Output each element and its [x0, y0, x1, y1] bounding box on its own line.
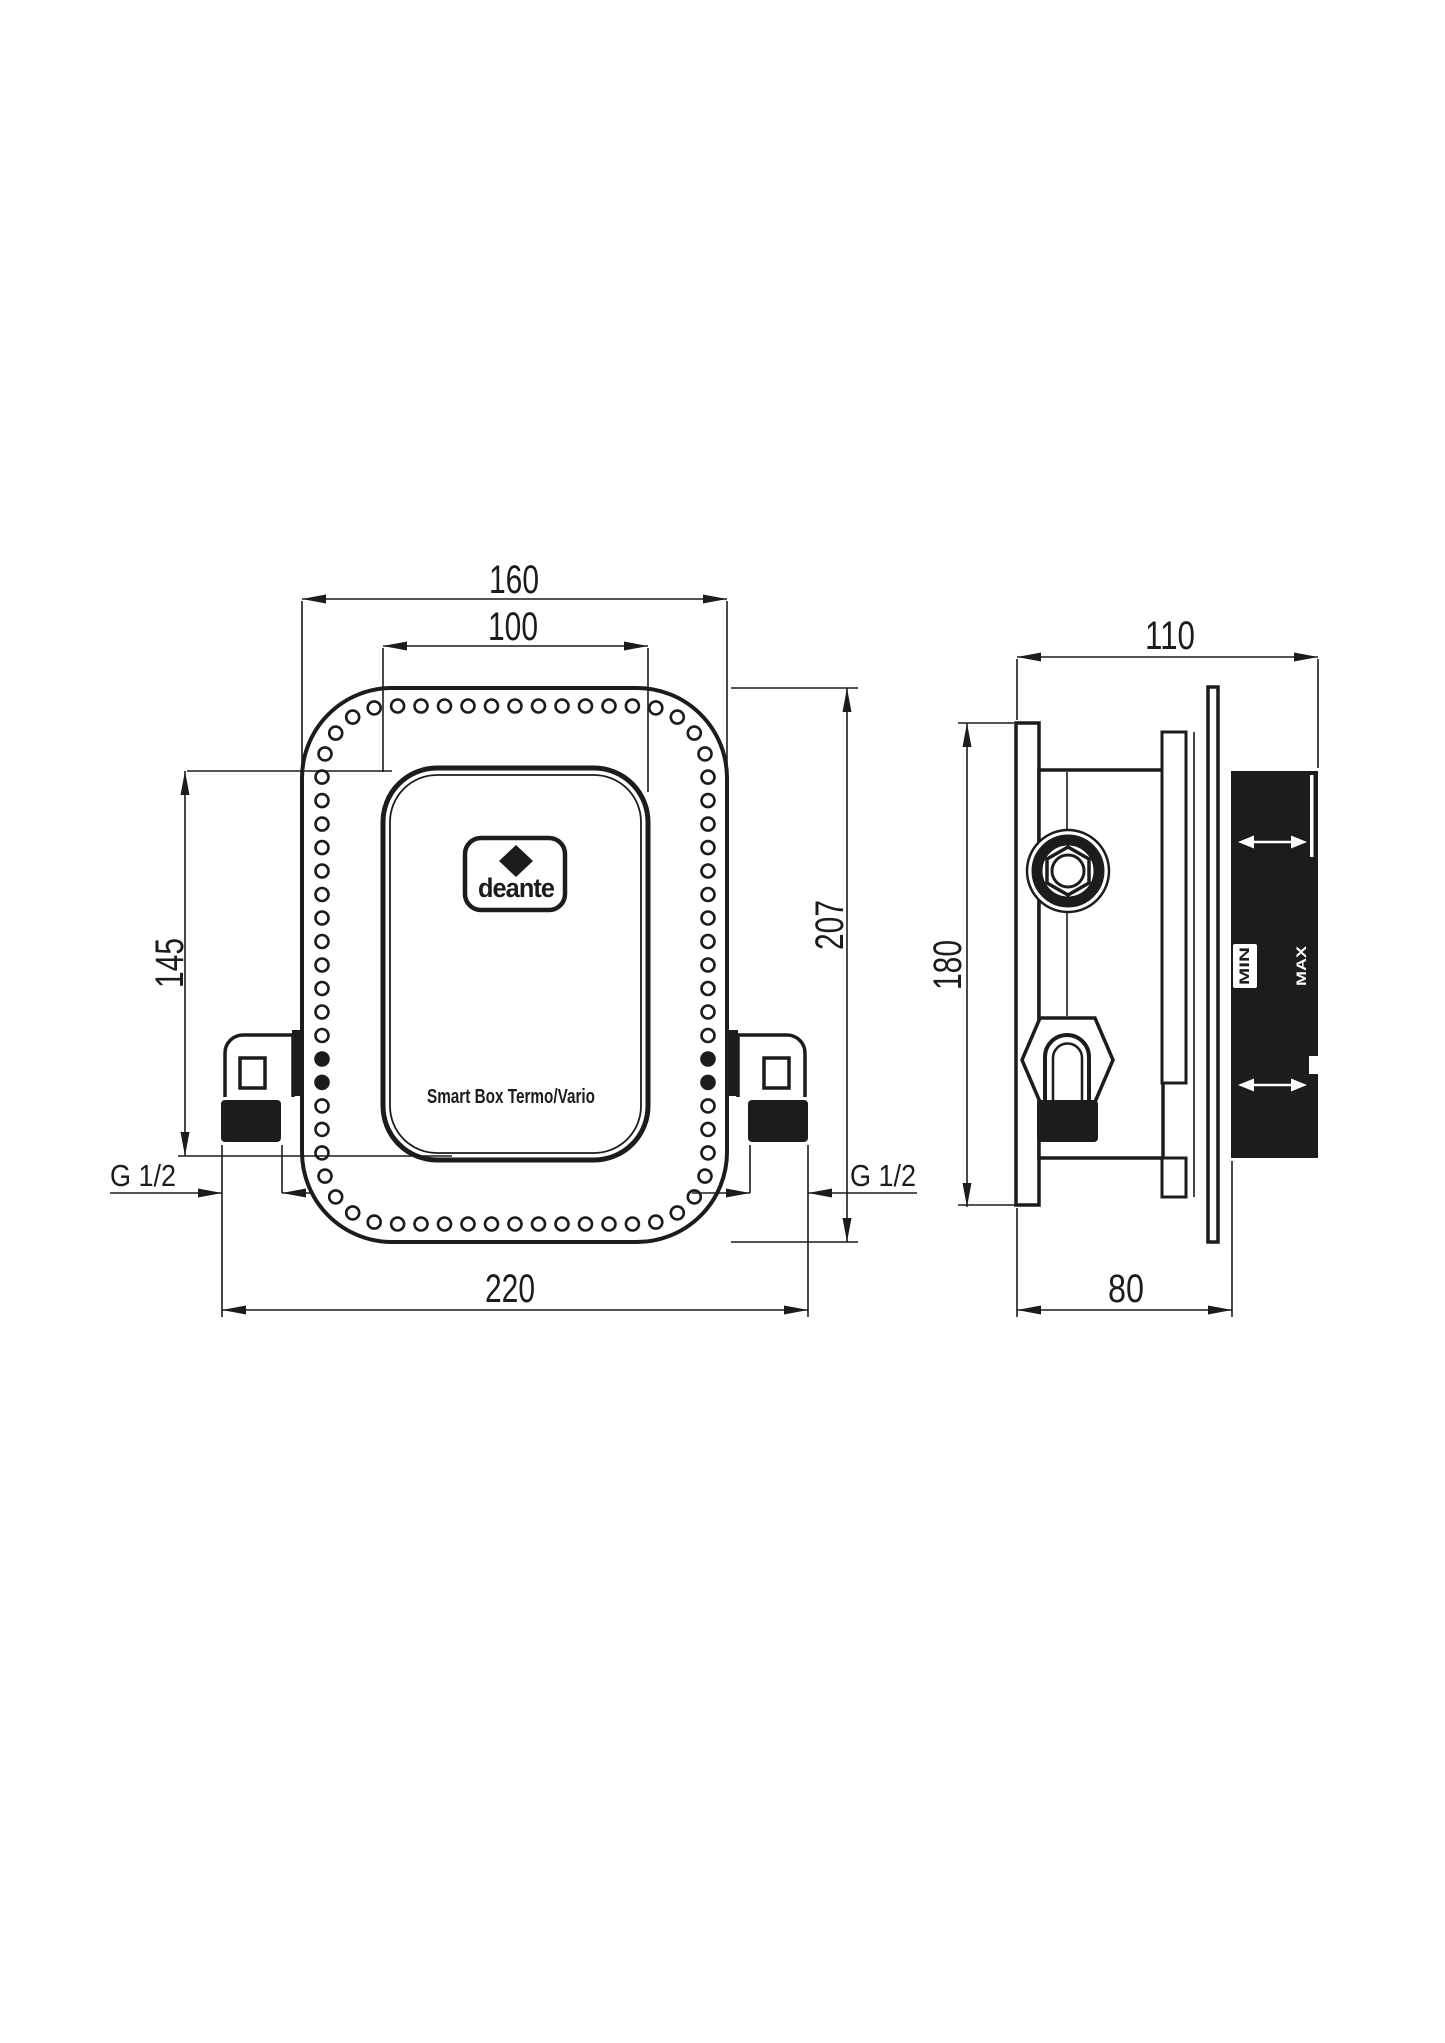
mounting-flange	[1016, 723, 1039, 1205]
arrow-right-icon	[624, 642, 648, 651]
arrow-down-icon	[181, 1132, 190, 1156]
mounting-hole	[368, 701, 381, 714]
product-label: Smart Box Termo/Vario	[427, 1086, 595, 1108]
mounting-hole	[316, 1099, 329, 1112]
mounting-hole-fixed	[316, 1053, 329, 1066]
mounting-hole	[462, 700, 475, 713]
dim-connections-span-value: 220	[485, 1267, 535, 1311]
inlet-threaded-pipe	[1037, 1100, 1098, 1142]
mounting-hole	[415, 700, 428, 713]
mounting-hole	[329, 727, 342, 740]
max-marking: MAX	[1293, 945, 1309, 986]
arrow-left-icon	[302, 595, 326, 604]
mounting-hole	[509, 1218, 522, 1231]
mounting-hole	[316, 935, 329, 948]
brand-logo: deante	[465, 838, 565, 910]
dim-outer-width-value: 160	[489, 558, 539, 602]
mounting-hole	[316, 982, 329, 995]
mounting-hole	[368, 1216, 381, 1229]
mounting-hole	[556, 700, 569, 713]
mounting-hole	[626, 1218, 639, 1231]
mounting-hole	[391, 1218, 404, 1231]
dim-cover-height-value: 145	[148, 938, 192, 988]
mounting-hole	[556, 1218, 569, 1231]
mounting-hole	[316, 888, 329, 901]
dim-outer-height-value: 207	[808, 900, 852, 950]
mounting-hole	[319, 747, 332, 760]
mounting-hole	[671, 711, 684, 724]
mounting-hole	[702, 959, 715, 972]
right-connection	[728, 1030, 808, 1142]
mounting-hole	[438, 700, 451, 713]
mounting-hole	[316, 959, 329, 972]
arrow-down-icon	[843, 1218, 852, 1242]
mounting-hole	[532, 700, 545, 713]
dim-box-depth: 80	[1017, 1161, 1232, 1317]
left-bracket-hole	[240, 1058, 265, 1088]
mounting-hole	[316, 1146, 329, 1159]
mounting-hole	[702, 1099, 715, 1112]
mounting-hole	[702, 1029, 715, 1042]
mounting-hole-fixed	[702, 1053, 715, 1066]
mounting-hole	[688, 727, 701, 740]
left-connection	[221, 1030, 302, 1142]
depth-adjustment-block: MIN MAX	[1231, 771, 1318, 1158]
port-bore	[1052, 855, 1084, 887]
drawing-svg: deante Smart Box Termo/Vario 160	[0, 0, 1445, 2043]
right-threaded-pipe	[748, 1100, 808, 1142]
mounting-hole	[702, 818, 715, 831]
depth-block-notch	[1309, 1056, 1318, 1074]
mounting-hole	[532, 1218, 545, 1231]
arrow-left-icon	[383, 642, 407, 651]
arrow-down-icon	[963, 1183, 972, 1207]
mounting-hole	[316, 865, 329, 878]
mounting-hole	[329, 1190, 342, 1203]
mounting-hole	[702, 1123, 715, 1136]
mounting-hole	[485, 1218, 498, 1231]
mounting-hole	[702, 935, 715, 948]
thread-left-label: G 1/2	[110, 1158, 176, 1193]
technical-drawing-sheet: deante Smart Box Termo/Vario 160	[0, 0, 1445, 2043]
mounting-hole	[671, 1206, 684, 1219]
arrow-right-icon	[726, 1189, 750, 1198]
thread-callout-left: G 1/2	[110, 1145, 312, 1198]
arrow-up-icon	[963, 723, 972, 747]
logo-wordmark: deante	[478, 873, 555, 903]
mounting-hole	[316, 794, 329, 807]
arrow-left-icon	[282, 1189, 306, 1198]
mounting-hole	[603, 700, 616, 713]
arrow-left-icon	[222, 1306, 246, 1315]
cartridge-column	[1162, 732, 1186, 1083]
arrow-right-icon	[784, 1306, 808, 1315]
thread-right-label: G 1/2	[850, 1158, 916, 1193]
mounting-hole	[699, 1170, 712, 1183]
mounting-hole	[702, 771, 715, 784]
mounting-hole	[699, 747, 712, 760]
arrow-right-icon	[1208, 1306, 1232, 1315]
arrow-left-icon	[808, 1189, 832, 1198]
arrow-up-icon	[181, 771, 190, 795]
mounting-hole	[316, 841, 329, 854]
mounting-hole	[316, 1123, 329, 1136]
right-bracket-hole	[764, 1058, 789, 1088]
mounting-hole	[415, 1218, 428, 1231]
depth-block-slot	[1310, 775, 1314, 857]
arrow-left-icon	[1017, 653, 1041, 662]
mounting-hole	[702, 888, 715, 901]
mounting-hole-fixed	[316, 1076, 329, 1089]
mounting-hole	[702, 912, 715, 925]
mounting-hole	[702, 1146, 715, 1159]
arrow-right-icon	[198, 1189, 222, 1198]
arrow-up-icon	[843, 688, 852, 712]
mounting-hole	[649, 1216, 662, 1229]
dim-box-depth-value: 80	[1108, 1267, 1144, 1311]
dim-cover-width-value: 100	[488, 605, 538, 649]
arrow-right-icon	[703, 595, 727, 604]
mounting-hole	[509, 700, 522, 713]
mounting-hole	[626, 700, 639, 713]
mounting-hole	[316, 1006, 329, 1019]
mounting-hole	[438, 1218, 451, 1231]
min-marking: MIN	[1236, 947, 1252, 985]
arrow-right-icon	[1294, 653, 1318, 662]
mounting-hole	[346, 711, 359, 724]
left-threaded-pipe	[221, 1100, 281, 1142]
mounting-hole	[462, 1218, 475, 1231]
mounting-hole	[579, 1218, 592, 1231]
mounting-hole	[702, 865, 715, 878]
mounting-hole	[346, 1206, 359, 1219]
mounting-hole	[702, 1006, 715, 1019]
mounting-hole	[603, 1218, 616, 1231]
mounting-hole	[579, 700, 592, 713]
mounting-hole	[702, 794, 715, 807]
mounting-hole	[316, 818, 329, 831]
mounting-hole	[316, 912, 329, 925]
mounting-hole	[391, 700, 404, 713]
dim-total-depth-value: 110	[1145, 614, 1195, 658]
mounting-hole	[702, 982, 715, 995]
mounting-hole-fixed	[702, 1076, 715, 1089]
bottom-tab	[1162, 1158, 1186, 1197]
mounting-hole	[485, 700, 498, 713]
arrow-left-icon	[1017, 1306, 1041, 1315]
mounting-hole	[649, 701, 662, 714]
mounting-hole	[316, 1029, 329, 1042]
mounting-hole	[702, 841, 715, 854]
side-view: MIN MAX	[1016, 687, 1318, 1242]
dim-flange-height-value: 180	[926, 940, 970, 990]
mounting-hole	[319, 1170, 332, 1183]
wall-reference-plate	[1208, 687, 1218, 1242]
mounting-hole	[316, 771, 329, 784]
